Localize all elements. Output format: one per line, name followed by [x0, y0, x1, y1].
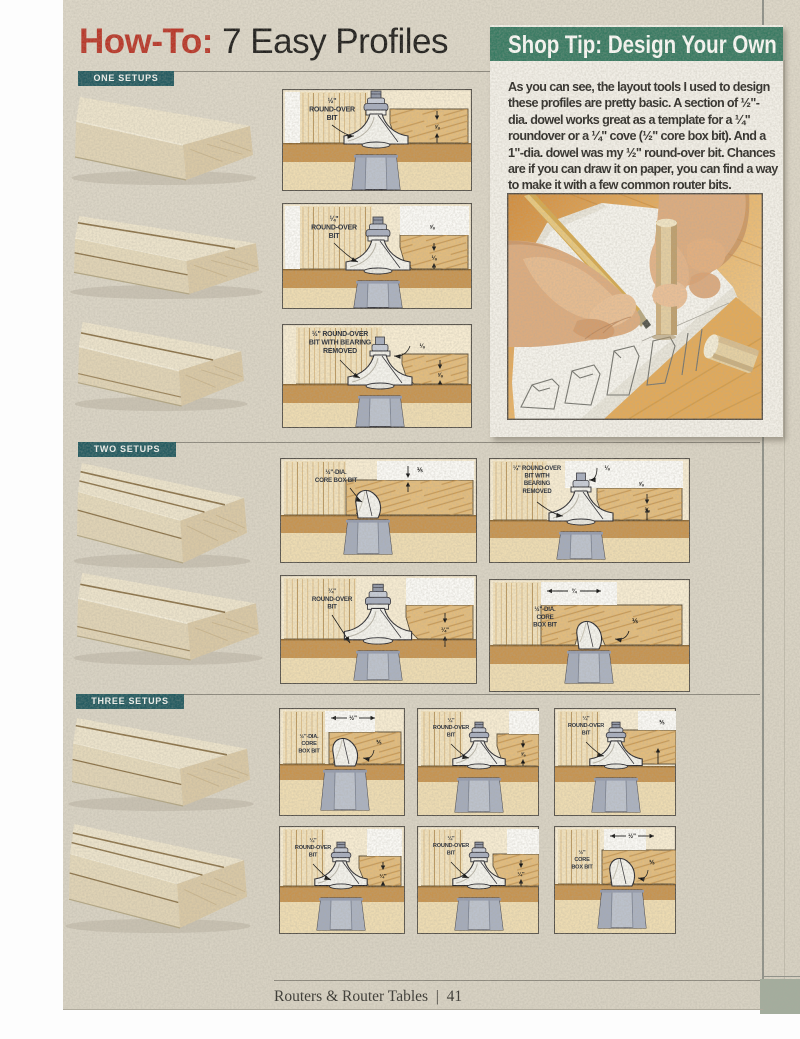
svg-text:¼": ¼" — [448, 835, 455, 842]
svg-text:BOX BIT: BOX BIT — [571, 864, 593, 870]
svg-text:BIT WITH: BIT WITH — [524, 474, 549, 480]
svg-text:BIT: BIT — [309, 852, 318, 858]
svg-text:CORE: CORE — [574, 857, 590, 863]
svg-text:BEARING: BEARING — [524, 481, 551, 487]
svg-text:BOX BIT: BOX BIT — [533, 622, 557, 629]
svg-text:ROUND-OVER: ROUND-OVER — [311, 225, 357, 232]
svg-text:¼": ¼" — [328, 588, 336, 595]
svg-text:½": ½" — [579, 849, 586, 856]
svg-text:REMOVED: REMOVED — [523, 489, 553, 495]
svg-text:BIT: BIT — [447, 850, 456, 856]
svg-text:½" ROUND-OVER: ½" ROUND-OVER — [312, 330, 368, 338]
svg-text:¼": ¼" — [441, 627, 449, 634]
svg-text:ROUND-OVER: ROUND-OVER — [568, 723, 604, 729]
svg-text:ROUND-OVER: ROUND-OVER — [295, 845, 331, 851]
svg-text:ROUND-OVER: ROUND-OVER — [309, 107, 355, 114]
svg-text:REMOVED: REMOVED — [323, 348, 357, 355]
svg-text:¼": ¼" — [310, 837, 317, 844]
svg-text:ROUND-OVER: ROUND-OVER — [433, 725, 469, 731]
svg-text:½": ½" — [349, 715, 357, 722]
svg-text:⅕: ⅕ — [649, 859, 655, 866]
svg-text:⅕: ⅕ — [632, 618, 638, 625]
svg-text:CORE BOX BIT: CORE BOX BIT — [315, 477, 358, 484]
svg-text:¼" ROUND-OVER: ¼" ROUND-OVER — [513, 465, 562, 472]
svg-text:BIT WITH BEARING: BIT WITH BEARING — [309, 340, 372, 347]
svg-text:ROUND-OVER: ROUND-OVER — [312, 596, 353, 603]
svg-text:⅕: ⅕ — [659, 719, 665, 726]
svg-text:BOX BIT: BOX BIT — [298, 748, 320, 754]
svg-text:½": ½" — [328, 97, 337, 105]
svg-text:BIT: BIT — [447, 732, 456, 738]
svg-text:½": ½" — [628, 833, 636, 840]
svg-text:CORE: CORE — [536, 614, 553, 621]
svg-text:BIT: BIT — [582, 730, 591, 736]
svg-text:½"-DIA.: ½"-DIA. — [534, 606, 556, 613]
svg-text:¼": ¼" — [583, 715, 590, 722]
svg-text:⅕: ⅕ — [417, 467, 423, 474]
svg-text:⅕: ⅕ — [376, 739, 382, 746]
svg-text:BIT: BIT — [327, 115, 339, 122]
svg-text:BIT: BIT — [327, 604, 337, 611]
svg-text:½"-DIA.: ½"-DIA. — [300, 733, 320, 740]
svg-text:BIT: BIT — [329, 233, 341, 240]
svg-text:CORE: CORE — [301, 741, 317, 747]
svg-text:⅝: ⅝ — [521, 752, 526, 758]
svg-text:¼": ¼" — [448, 717, 455, 724]
svg-text:¼": ¼" — [330, 215, 339, 223]
svg-text:¼": ¼" — [517, 871, 525, 878]
svg-text:ROUND-OVER: ROUND-OVER — [433, 843, 469, 849]
svg-text:½"-DIA.: ½"-DIA. — [325, 469, 347, 476]
svg-text:¼": ¼" — [379, 873, 387, 880]
